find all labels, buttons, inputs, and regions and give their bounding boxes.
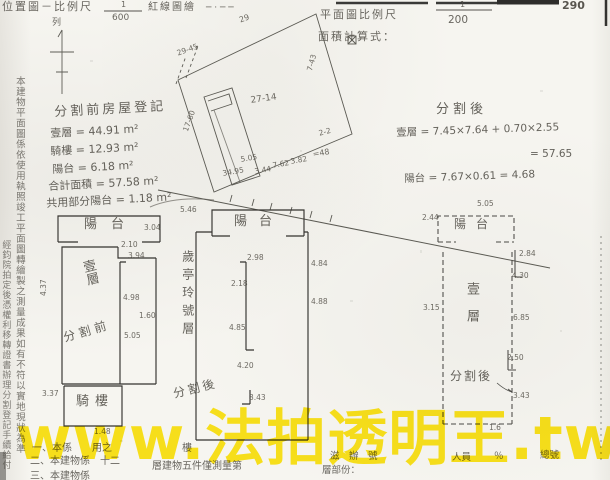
plan-dim: 4.30 (512, 272, 529, 281)
plan-dim: 3.15 (423, 304, 440, 313)
plan-dim: 4.84 (311, 260, 328, 269)
site-parcel-number: 27-14 (250, 92, 277, 106)
site-dim: 17-60 (182, 110, 198, 133)
plan-dim: 2.98 (247, 254, 264, 263)
plan-dim: 2.44 (422, 214, 439, 223)
plan-dim: 5.05 (477, 200, 494, 209)
plan-dim: 3.94 (128, 252, 145, 261)
site-dim: 34.95 (222, 166, 245, 178)
watermark-text: www.法拍透明王.tw (16, 390, 610, 477)
plan-dim: 2.50 (507, 354, 524, 363)
plan-dim: 1.60 (139, 312, 156, 321)
plan-dim: 4.20 (237, 362, 254, 371)
site-dim: 29 (238, 13, 251, 25)
site-dim: 3.44 (254, 165, 272, 176)
plan-dim: 5.05 (124, 332, 141, 341)
site-dim: 7-43 (306, 54, 319, 73)
site-dim: 29-45 (176, 43, 199, 59)
plan-dim: 2.10 (121, 241, 138, 250)
site-dim: =48 (312, 147, 330, 159)
site-dim: 7.62 (272, 159, 290, 170)
scanned-survey-document: 位置圖－比例尺1600紅線圖繪─ · ─ ─列平面圖比例尺1200面積計算式：2… (0, 0, 610, 480)
plan-dim: 4.98 (123, 294, 140, 303)
site-dim: 3.82 (290, 155, 308, 166)
plan-dim: 4.85 (229, 324, 246, 333)
plan-dim: 6.85 (513, 314, 530, 323)
plan-dim: 3.04 (144, 224, 161, 233)
plan-dim: 2.84 (519, 250, 536, 259)
plan-dim: 4.88 (311, 298, 328, 307)
plan-dim: 4.37 (40, 279, 49, 296)
plan-dim: 5.46 (180, 206, 197, 215)
site-dim: 5.05 (240, 153, 258, 164)
plan-dim: 2.18 (231, 280, 248, 289)
site-dim: 2-2 (318, 127, 332, 139)
